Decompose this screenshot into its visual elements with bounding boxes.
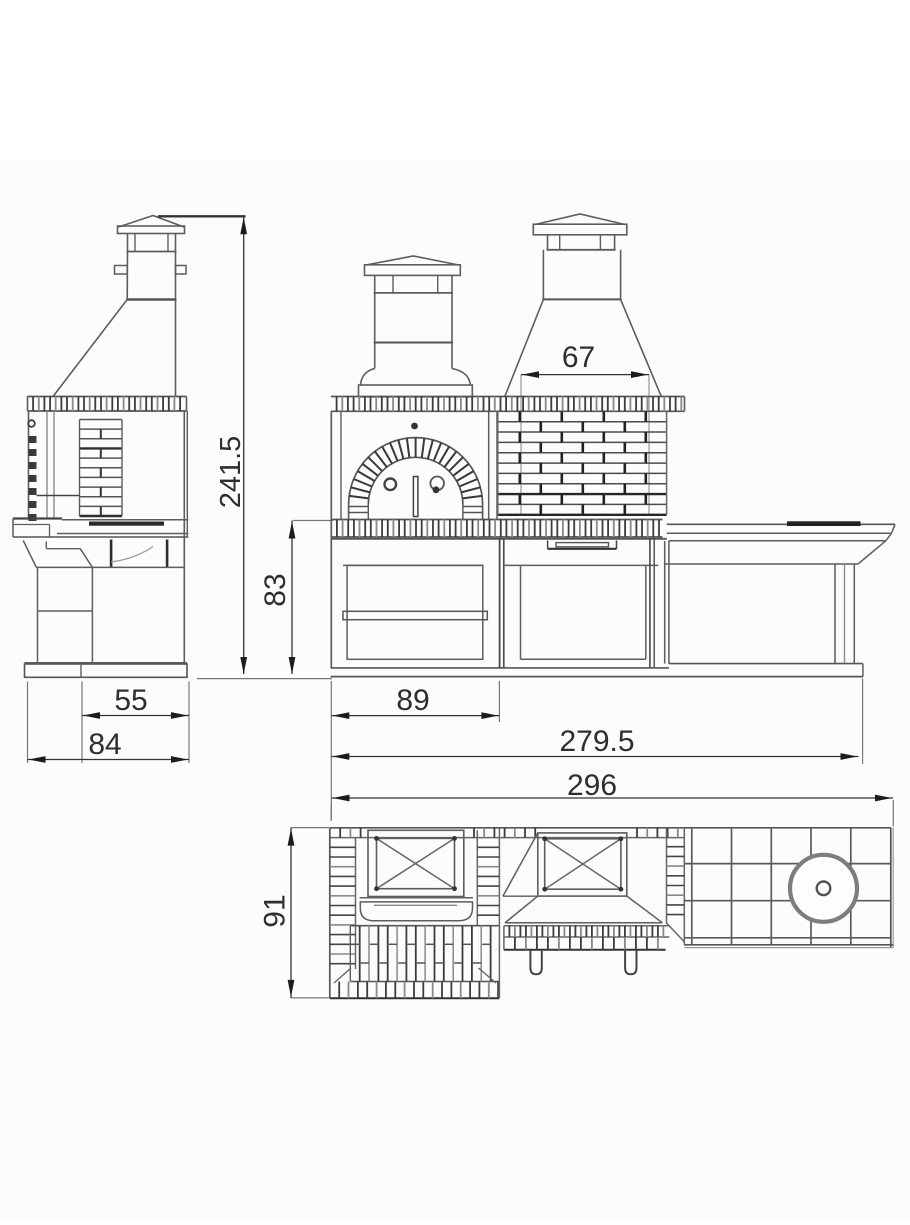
svg-text:84: 84 — [88, 728, 121, 761]
svg-text:83: 83 — [259, 573, 292, 606]
svg-text:241.5: 241.5 — [215, 436, 247, 509]
svg-text:67: 67 — [562, 341, 595, 374]
svg-text:55: 55 — [114, 684, 147, 717]
svg-text:91: 91 — [259, 894, 292, 927]
svg-text:296: 296 — [567, 769, 617, 802]
svg-text:279.5: 279.5 — [559, 725, 634, 758]
svg-text:89: 89 — [396, 684, 429, 717]
